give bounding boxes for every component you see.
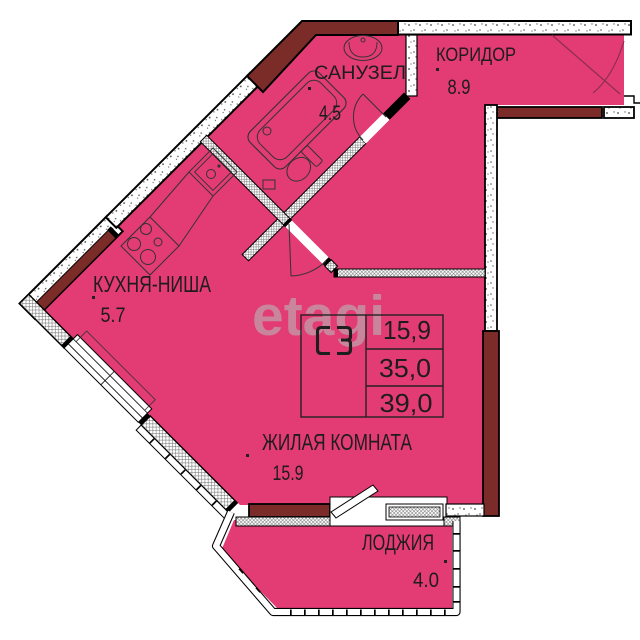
- svg-text:5.7: 5.7: [101, 304, 126, 327]
- svg-text:4.0: 4.0: [413, 569, 439, 592]
- svg-text:КУХНЯ-НИША: КУХНЯ-НИША: [93, 271, 211, 297]
- svg-text:39,0: 39,0: [380, 388, 433, 418]
- svg-text:15.9: 15.9: [273, 462, 304, 485]
- svg-text:ЛОДЖИЯ: ЛОДЖИЯ: [362, 530, 434, 555]
- svg-text:8.9: 8.9: [448, 76, 471, 99]
- svg-text:4.5: 4.5: [319, 102, 341, 125]
- svg-text:САНУЗЕЛ: САНУЗЕЛ: [314, 63, 406, 84]
- svg-text:ЖИЛАЯ КОМНАТА: ЖИЛАЯ КОМНАТА: [262, 429, 412, 455]
- svg-text:15,9: 15,9: [383, 315, 431, 345]
- svg-text:35,0: 35,0: [379, 353, 431, 383]
- svg-text:КОРИДОР: КОРИДОР: [436, 45, 516, 66]
